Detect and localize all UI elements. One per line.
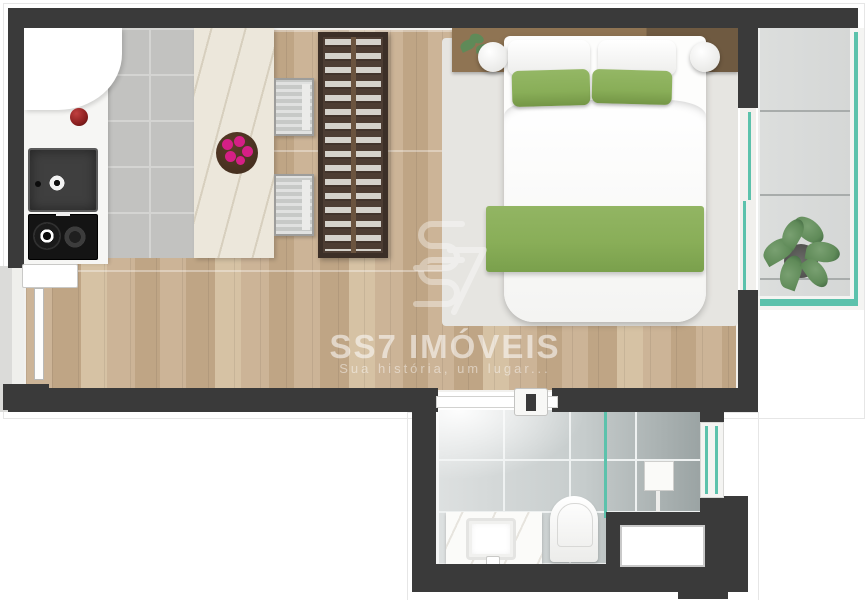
wall-bathroom-left [412,388,436,592]
wardrobe-rail [351,37,356,253]
cooktop-knob [56,212,70,216]
bathroom-light-glow [436,410,586,480]
glass-door-panel-top [748,112,751,200]
bedside-lamp-left [478,42,508,72]
burner-small [64,226,86,248]
sink-drain-dot [35,181,41,187]
kitchen-faucet [48,174,66,192]
wall-bottom-main [8,388,438,412]
entrance-door-jamb [22,264,78,288]
bar-stool-top [274,78,314,136]
shower-glass-partition [604,412,607,518]
floor-plan: SS7 IMÓVEIS Sua história, um lugar... [0,0,867,600]
bathroom-door-handle [514,388,548,416]
window-glass-pane [715,426,718,494]
service-shaft [620,525,705,567]
bathroom-sink [466,518,516,560]
balcony-plant [762,218,838,294]
shower-head-plate [644,461,674,491]
bedside-lamp-right [690,42,720,72]
green-pillow-right [592,69,673,105]
burner-large [33,222,61,250]
green-pillow-left [512,69,591,107]
entrance-door-leaf [34,288,44,380]
bathroom-window [700,422,724,498]
fruit-bowl [216,132,258,174]
window-glass-pane [705,426,708,494]
bar-stool-bottom [274,174,314,236]
open-wardrobe-rack [318,32,388,258]
wall-stub-bottom-right [678,592,728,599]
wall-step-left [3,384,49,410]
toilet [550,496,598,562]
bed-green-runner [486,206,704,272]
wall-top [8,8,858,28]
wall-balcony-divider-top [738,28,758,108]
glass-door-panel-bottom [743,201,746,290]
balcony-glass-right [854,32,858,302]
balcony-glass-bottom [760,299,858,306]
wall-bathroom-bottom [412,564,748,592]
wall-left [8,28,24,268]
fruit-decor [70,108,88,126]
wall-bathroom-top [552,388,758,412]
